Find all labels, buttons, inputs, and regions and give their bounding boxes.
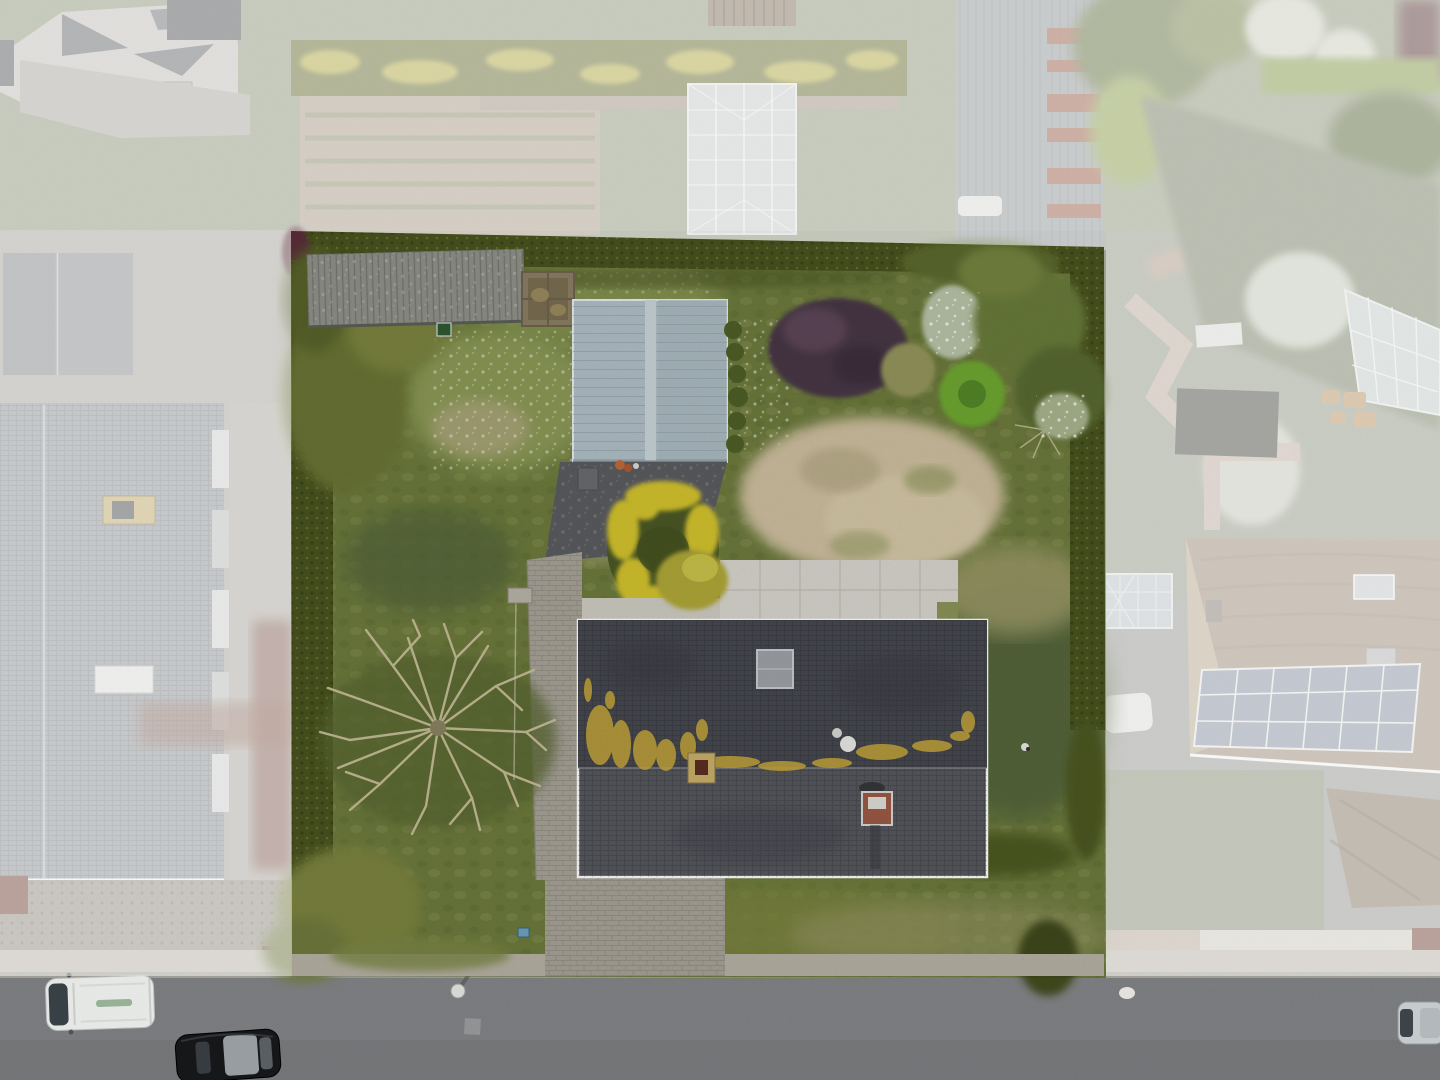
drone-photo-stage [0, 0, 1440, 1080]
aerial-photo [0, 0, 1440, 1080]
photo-grain [0, 0, 1440, 1080]
